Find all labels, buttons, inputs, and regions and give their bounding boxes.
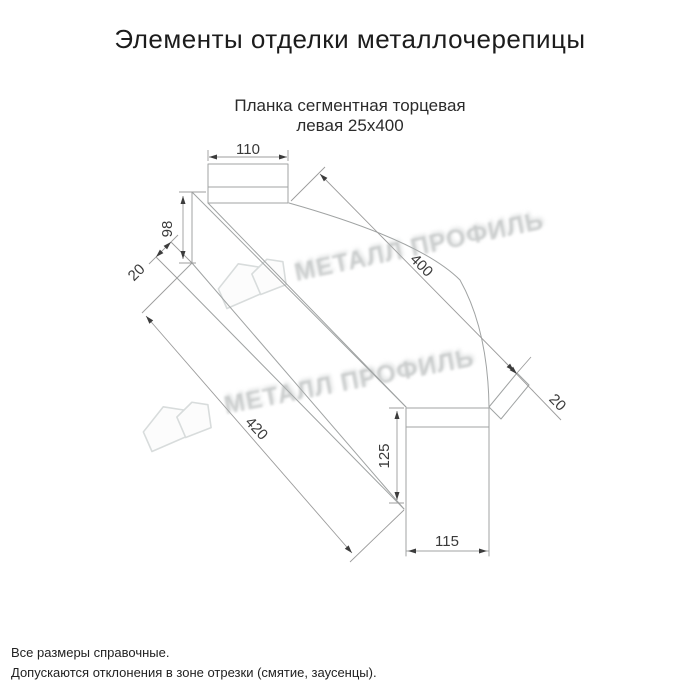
footnote-cutting-tolerance: Допускаются отклонения в зоне отрезки (с… [11, 665, 377, 680]
metal-profile-logo-icon [139, 397, 215, 452]
product-name-line1: Планка сегментная торцевая [0, 96, 700, 116]
page-title: Элементы отделки металлочерепицы [0, 24, 700, 55]
dim-label-left-end-height: 98 [159, 207, 177, 251]
dim-label-top-flange-width: 110 [226, 141, 270, 159]
dim-label-right-end-height: 125 [376, 434, 394, 478]
dim-label-bottom-flange-width: 115 [425, 533, 469, 551]
footnote-dimensions-reference: Все размеры справочные. [11, 645, 169, 660]
product-name-line2: левая 25х400 [0, 116, 700, 136]
technical-drawing-page: МЕТАЛЛ ПРОФИЛЬ МЕТАЛЛ ПРОФИЛЬ Элементы о… [0, 0, 700, 700]
dimension-arrows [146, 155, 536, 554]
dimension-lines [142, 150, 561, 562]
